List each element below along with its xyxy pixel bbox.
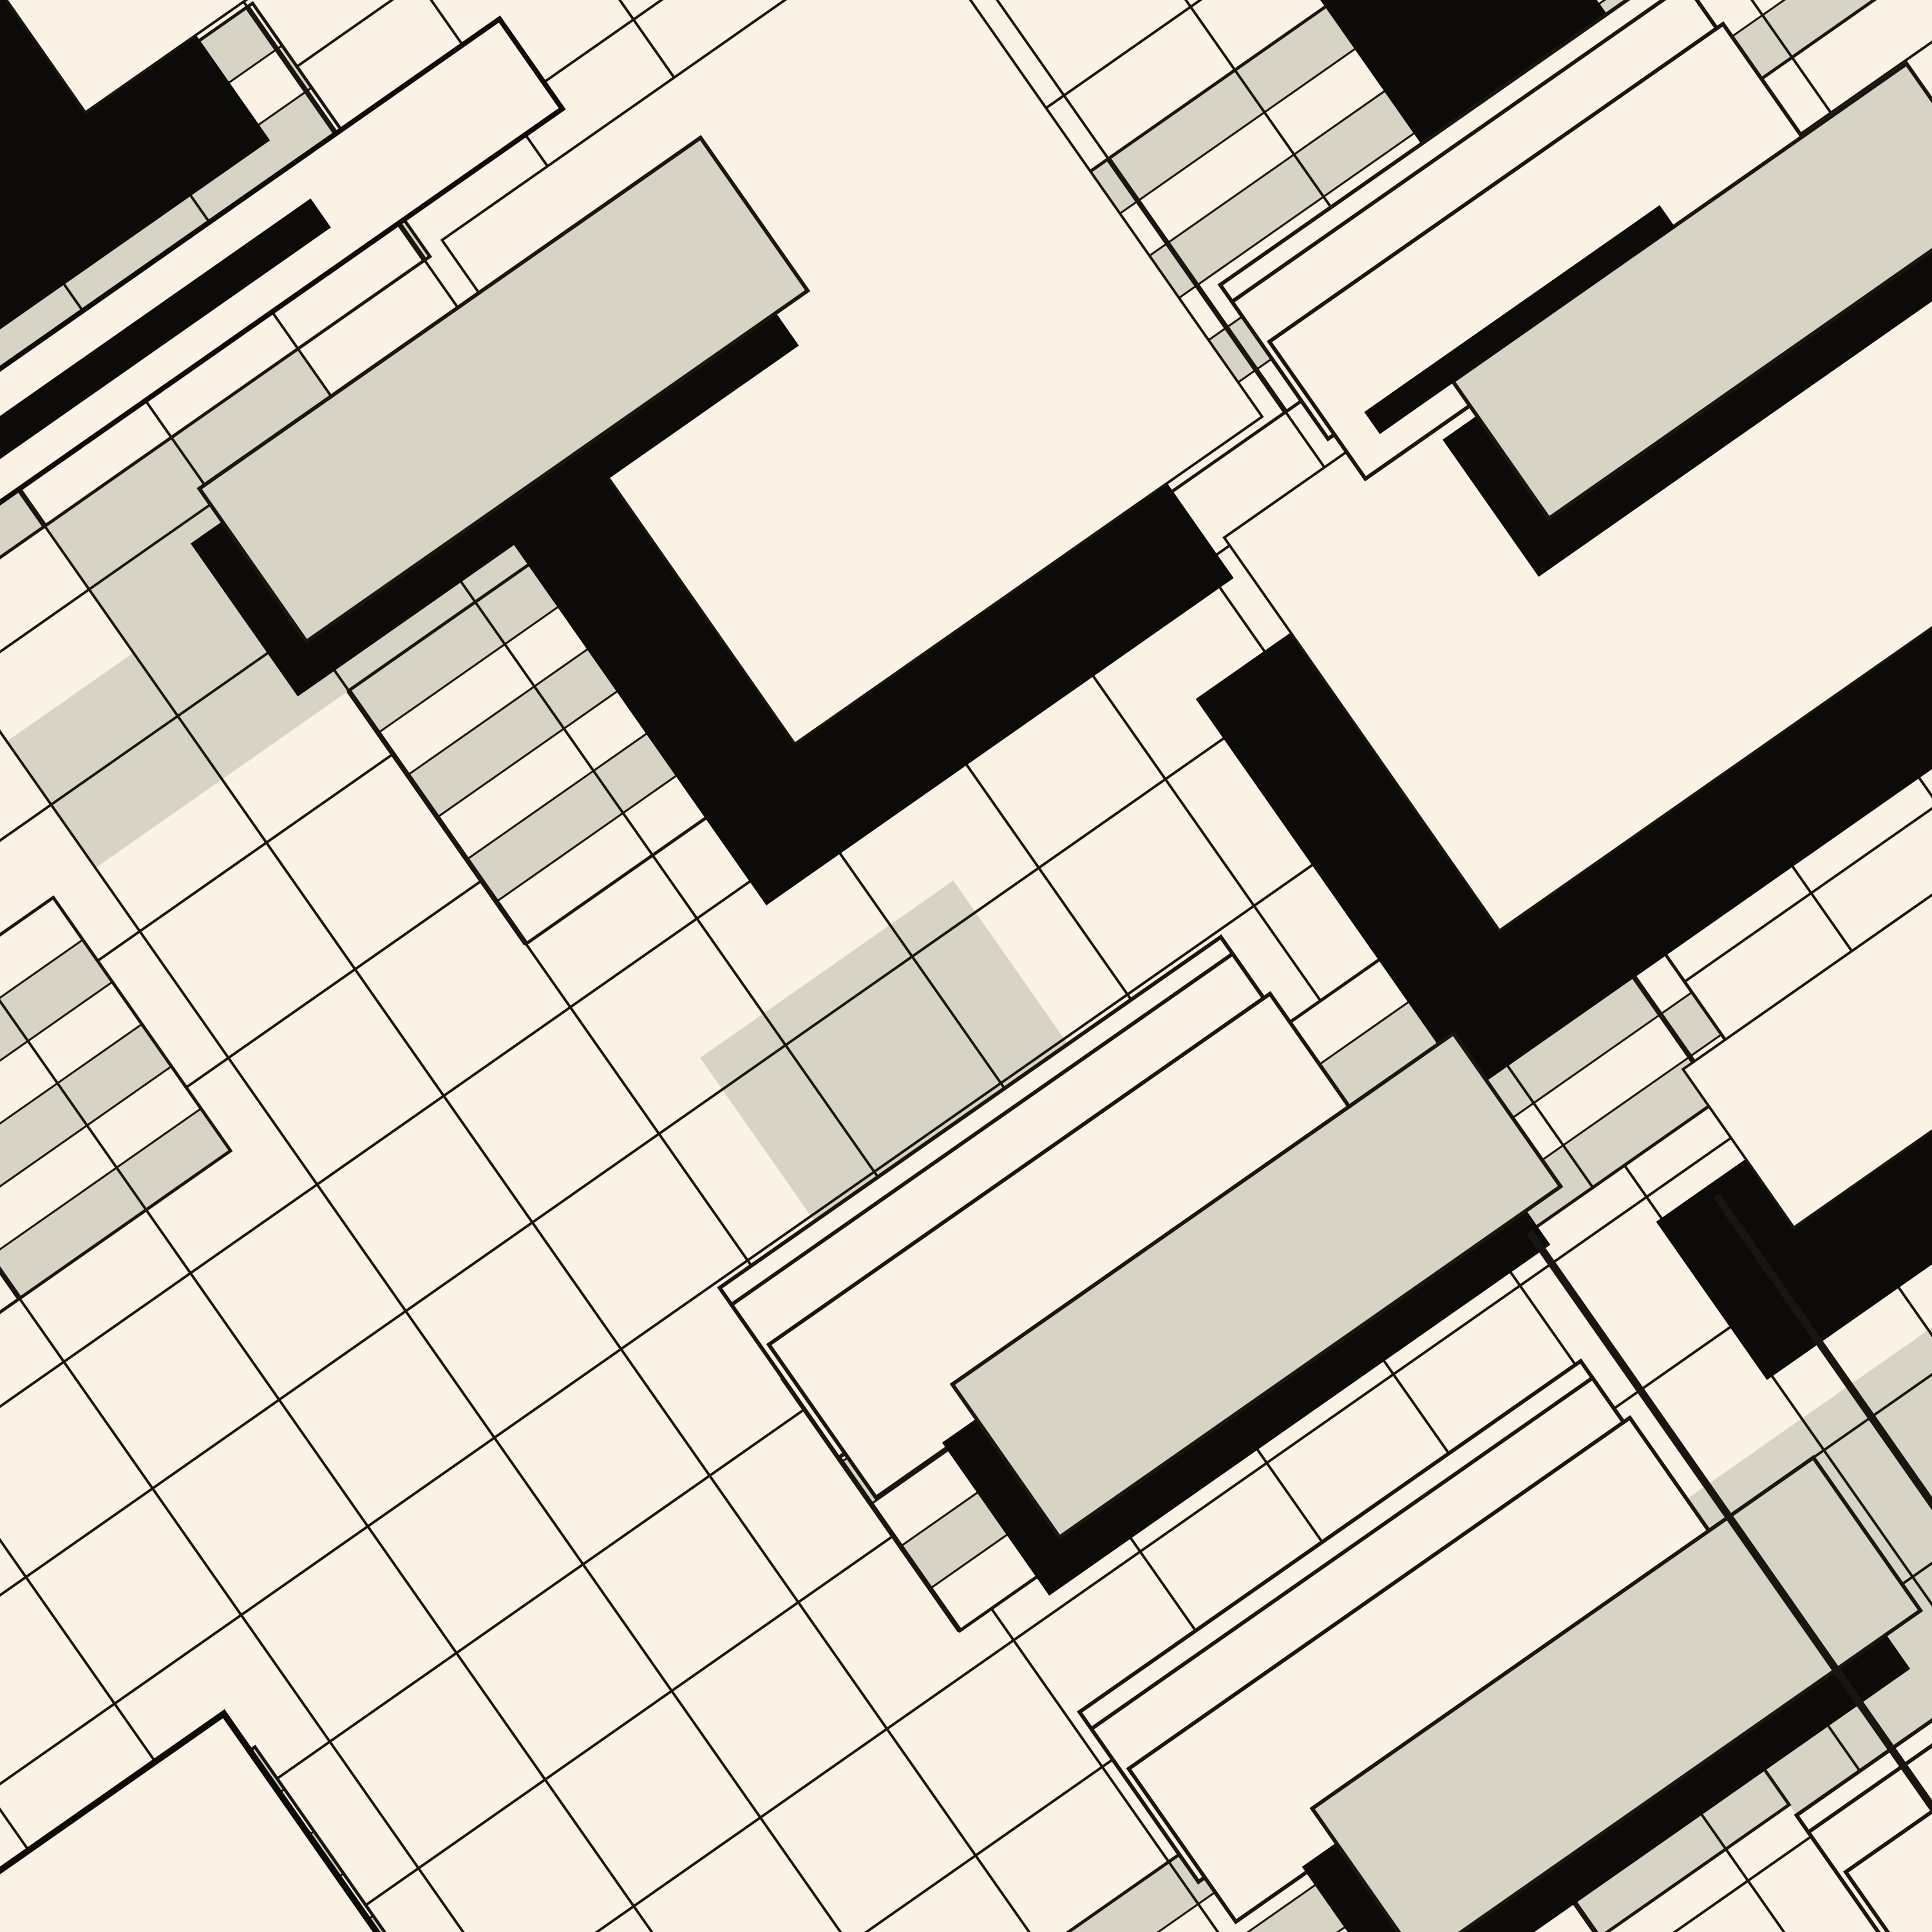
abstract-art-canvas <box>0 0 1932 1932</box>
composition-svg <box>0 0 1932 1932</box>
